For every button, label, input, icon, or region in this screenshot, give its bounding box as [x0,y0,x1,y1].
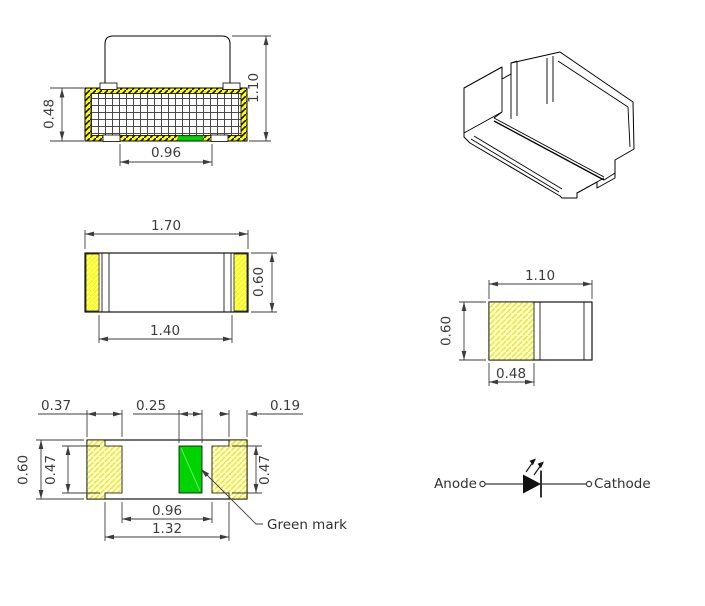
anode-terminal [480,481,485,486]
green-mark-edge [178,136,203,141]
dim-front-total-height: 1.10 [246,73,262,103]
dim-top-inner-width: 1.40 [150,323,180,339]
dim-top-height: 0.60 [251,267,267,297]
dim-outer-span: 1.32 [152,521,182,537]
dim-front-height: 0.48 [42,99,58,129]
dim-pad-height-left: 0.47 [43,455,59,485]
side-pad [489,302,534,360]
dim-side-height: 0.60 [439,316,455,346]
dim-front-bottom-width: 0.96 [151,145,181,161]
bottom-notch-right [211,135,228,142]
bottom-pad-right [212,440,247,499]
front-body-grid [91,94,241,136]
anode-label: Anode [434,476,477,492]
green-mark-label: Green mark [267,517,347,533]
drawing-canvas: 0.48 1.10 0.96 1.70 [0,0,705,606]
cathode-label: Cathode [594,476,651,492]
dim-top-outer-width: 1.70 [151,218,181,234]
led-package-drawing: 0.48 1.10 0.96 1.70 [0,0,705,606]
dim-bottom-height: 0.60 [16,455,32,485]
dim-green-width: 0.25 [136,398,166,414]
dim-side-width: 1.10 [525,268,555,284]
dim-side-pad-width: 0.48 [496,366,526,382]
top-tab-left [100,83,117,90]
dim-inner-span: 0.96 [152,503,182,519]
bottom-pad-left [87,440,122,499]
top-electrode-right [234,254,247,311]
bottom-notch-left [103,135,120,142]
top-electrode-left [86,254,99,311]
cathode-terminal [586,481,591,486]
top-tab-right [223,83,240,90]
top-body [85,253,248,312]
dim-end-strip-width: 0.19 [270,398,300,414]
dim-bottom-pad-width: 0.37 [41,398,71,414]
dim-pad-height-right: 0.47 [257,455,273,485]
